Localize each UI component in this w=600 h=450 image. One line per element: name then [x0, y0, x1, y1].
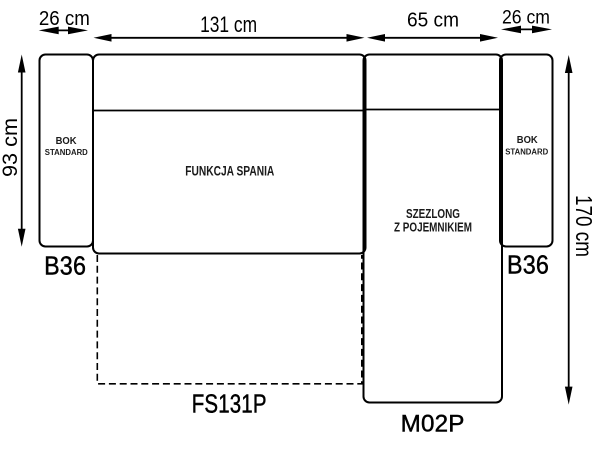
svg-text:B36: B36	[44, 250, 86, 280]
svg-text:131 cm: 131 cm	[200, 12, 257, 37]
svg-text:170 cm: 170 cm	[571, 195, 597, 257]
svg-text:93 cm: 93 cm	[0, 118, 22, 177]
svg-text:STANDARD: STANDARD	[505, 147, 548, 157]
svg-text:26 cm: 26 cm	[502, 8, 550, 29]
svg-text:FS131P: FS131P	[192, 389, 267, 419]
svg-text:STANDARD: STANDARD	[45, 147, 88, 157]
svg-text:B36: B36	[507, 250, 549, 280]
svg-text:BOK: BOK	[517, 135, 539, 146]
svg-text:26 cm: 26 cm	[39, 7, 90, 30]
svg-text:M02P: M02P	[401, 410, 465, 437]
svg-text:65 cm: 65 cm	[407, 9, 459, 31]
svg-text:Z POJEMNIKIEM: Z POJEMNIKIEM	[394, 220, 472, 235]
svg-text:BOK: BOK	[56, 136, 78, 147]
svg-text:FUNKCJA SPANIA: FUNKCJA SPANIA	[185, 164, 274, 180]
